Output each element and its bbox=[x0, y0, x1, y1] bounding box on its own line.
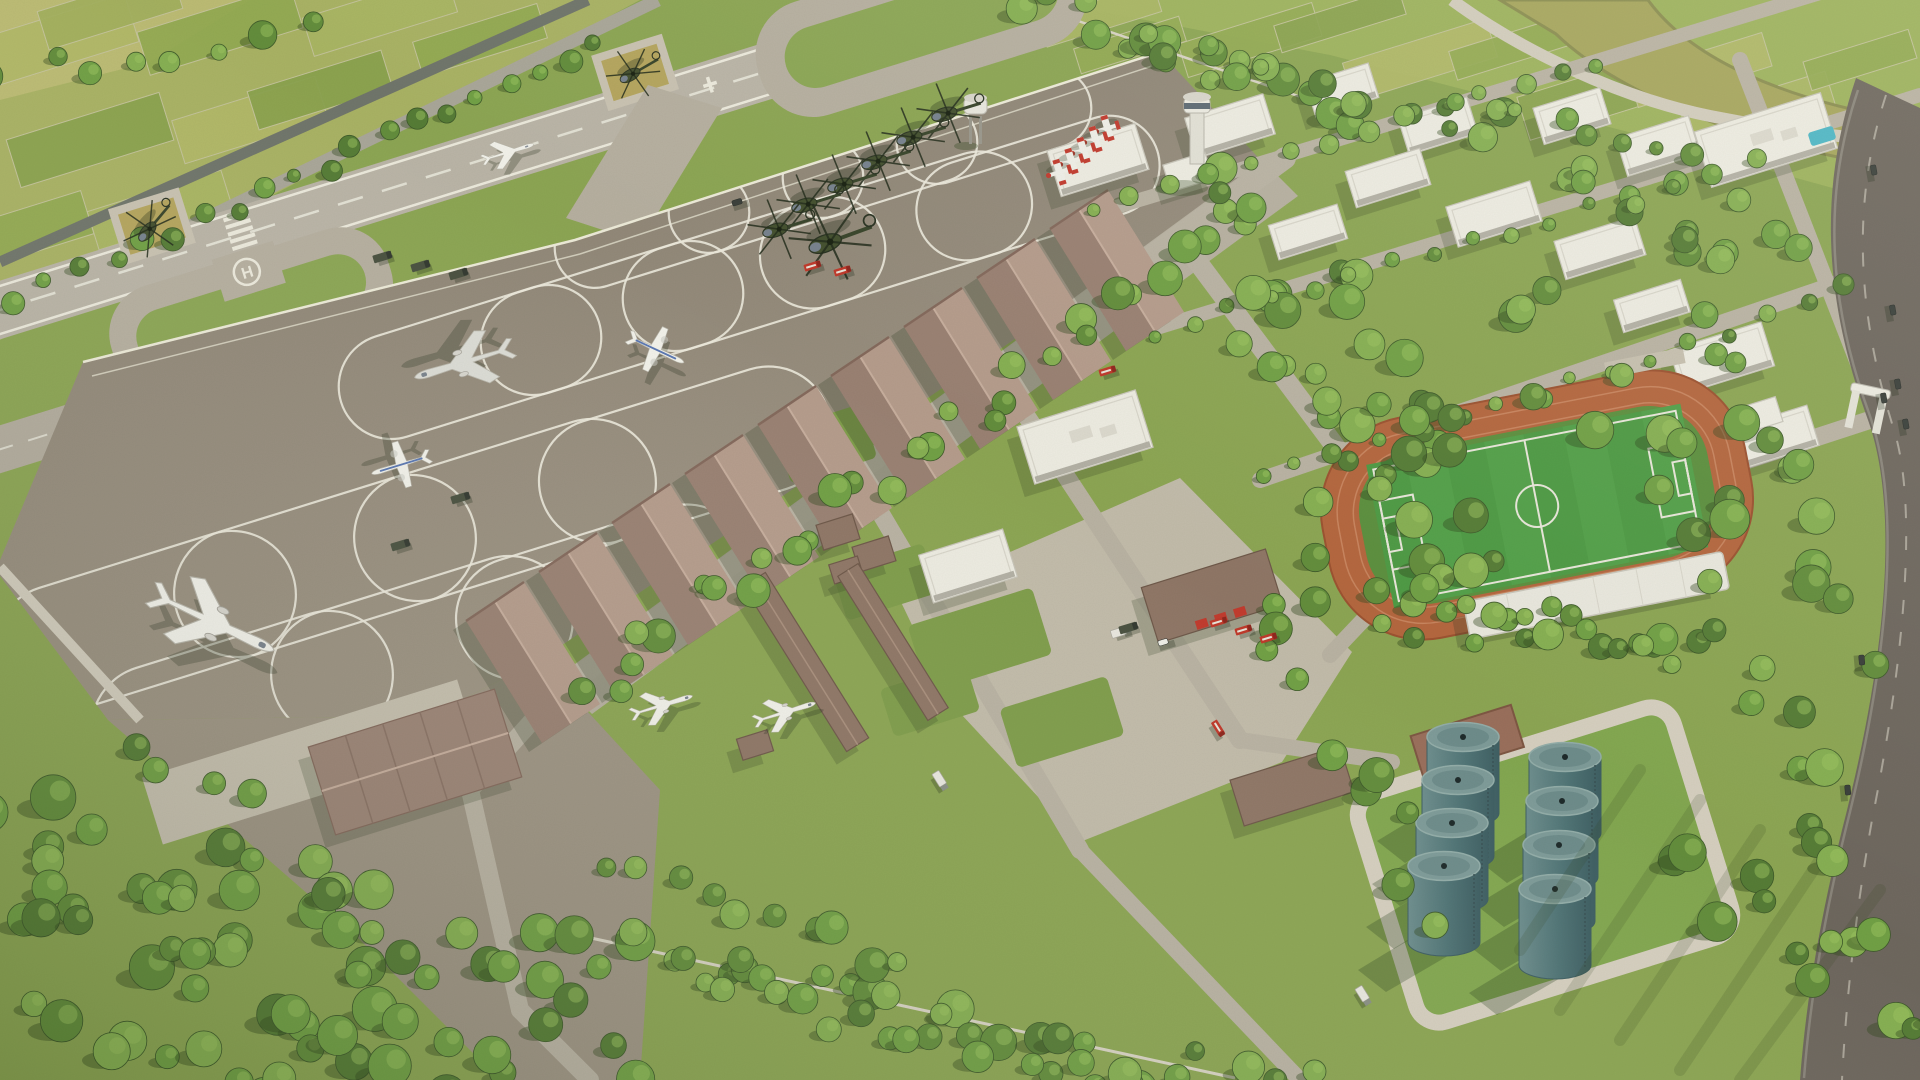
aerial-render: H bbox=[0, 0, 1920, 1080]
light-overlay bbox=[0, 0, 1920, 1080]
scene-svg: H bbox=[0, 0, 1920, 1080]
